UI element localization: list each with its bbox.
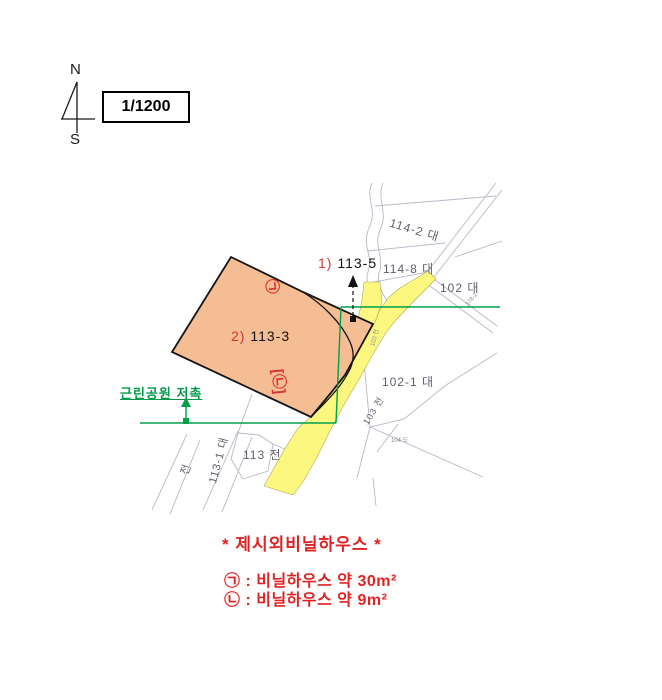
legend-item-b-mark: ㉡ [224, 592, 241, 609]
legend-item-b: ㉡ : 비닐하우스 약 9m² [224, 586, 387, 610]
greenhouse-mark-b: [㉡] [270, 368, 288, 394]
scale-box: 1/1200 [102, 91, 190, 123]
annotation-113-5-number: 113-5 [337, 255, 377, 271]
annotation-113-3-prefix: 2) [231, 328, 245, 344]
parcel-label-114-8: 114-8 대 [383, 260, 434, 277]
compass-south-label: S [70, 131, 80, 148]
road-edge [434, 190, 502, 277]
parcel-line [455, 241, 502, 257]
compass-icon [61, 82, 95, 133]
parcel-line [357, 427, 370, 478]
annotation-113-3: 2) 113-3 [231, 328, 290, 344]
greenhouse-mark-a: ㉠ [263, 278, 279, 294]
pointer-anchor-dot [350, 316, 356, 322]
legend-title: * 제시외비닐하우스 * [222, 530, 382, 555]
annotation-113-3-number: 113-3 [250, 328, 290, 344]
parcel-line [375, 196, 496, 206]
parcel-line [238, 394, 252, 433]
parcel-label-104: 104 도 [391, 435, 408, 444]
parcel-line [170, 440, 200, 514]
park-note-label: 근린공원 저촉 [120, 383, 202, 402]
park-note-anchor-dot [183, 418, 189, 424]
annotation-113-5-prefix: 1) [318, 255, 332, 271]
parcel-line [370, 427, 483, 477]
parcel-label-113: 113 전 [243, 446, 282, 463]
annotation-113-5: 1) 113-5 [318, 255, 377, 271]
scale-label: 1/1200 [122, 98, 171, 116]
parcel-line [370, 353, 497, 427]
pointer-arrowhead [348, 275, 358, 287]
parcel-label-102-1: 102-1 대 [382, 373, 434, 390]
compass-north-label: N [70, 61, 81, 78]
parcel-line [373, 478, 376, 506]
cadastral-map-page: N S 1/1200 1) 113-5 2) 113-3 ㉠ [㉡] 근린공원 … [0, 0, 662, 700]
legend-item-b-text: : 비닐하우스 약 9m² [241, 592, 388, 609]
